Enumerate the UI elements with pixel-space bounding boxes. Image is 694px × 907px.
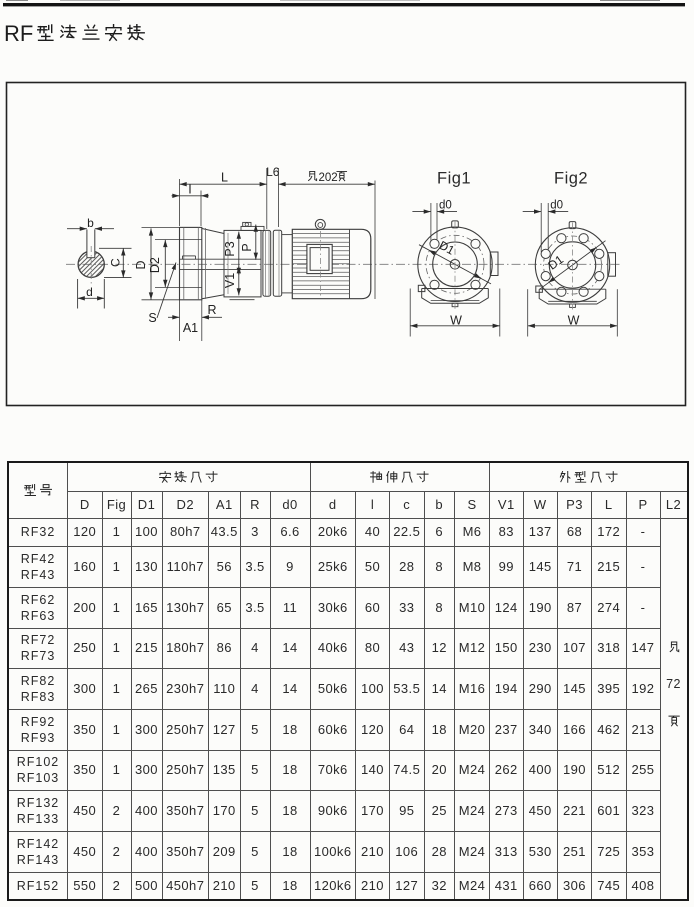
svg-text:L6: L6 [266, 165, 280, 179]
svg-text:RF: RF [4, 21, 33, 46]
svg-text:S: S [148, 311, 156, 325]
svg-text:d: d [86, 285, 93, 299]
svg-text:b: b [87, 216, 94, 230]
svg-text:Fig1: Fig1 [437, 170, 471, 188]
svg-text:A1: A1 [183, 321, 198, 335]
svg-text:L: L [221, 171, 228, 185]
svg-text:R: R [207, 303, 216, 317]
svg-text:P3: P3 [223, 241, 237, 256]
svg-text:d0: d0 [439, 200, 452, 212]
svg-text:D2: D2 [148, 257, 162, 273]
svg-text:W: W [450, 314, 462, 328]
svg-text:V1: V1 [223, 273, 237, 288]
svg-text:C: C [109, 258, 123, 267]
svg-text:d0: d0 [550, 200, 563, 212]
svg-text:Fig2: Fig2 [554, 170, 588, 188]
svg-text:202: 202 [319, 172, 338, 184]
svg-text:I: I [188, 182, 191, 196]
svg-text:D: D [134, 260, 148, 269]
svg-text:D1: D1 [437, 238, 457, 258]
svg-text:W: W [568, 314, 580, 328]
svg-text:P: P [240, 243, 254, 251]
